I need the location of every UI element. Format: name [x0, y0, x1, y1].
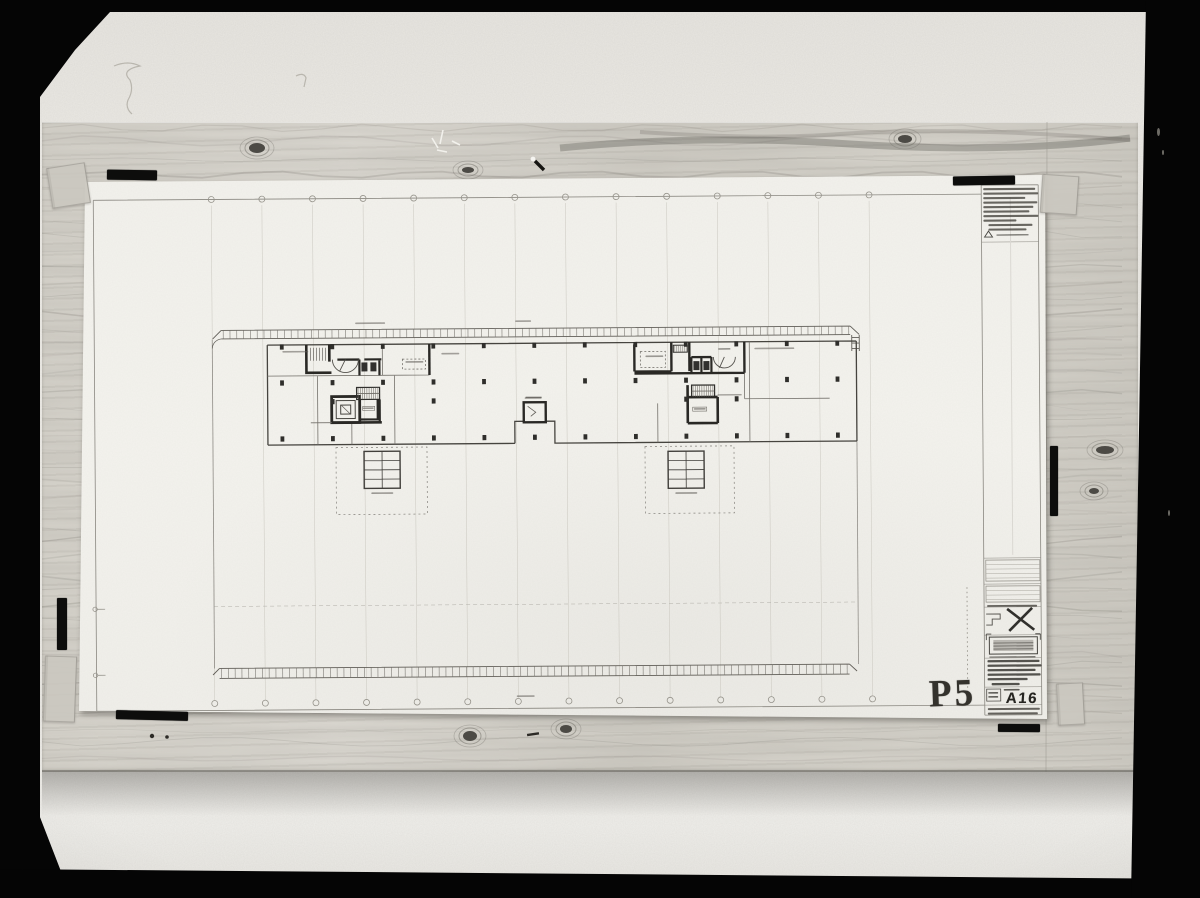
archival-photograph: P5 A16: [0, 0, 1200, 898]
paper-crease: [1010, 197, 1012, 555]
left-border-axis-marks: [93, 607, 106, 677]
canopy-rungs-top: [223, 326, 849, 339]
column-grid-axes: [208, 192, 875, 707]
revision-notes-symbol: [984, 231, 1028, 237]
black-tape-mark-bottom-left: [116, 710, 188, 721]
drawing-frame: [93, 185, 1042, 722]
canopy-band-top: [212, 326, 859, 356]
black-tape-mark-top-right: [953, 175, 1015, 185]
masking-tape-bottom-left: [43, 655, 77, 722]
building-outline: [267, 341, 857, 445]
plate-number-stamp: P5: [928, 670, 990, 717]
service-core-left: [306, 344, 430, 423]
site-plan-sketch: [986, 608, 1040, 657]
masking-tape-top-right: [1040, 174, 1080, 215]
sheet-number-stamp: A16: [1005, 690, 1038, 707]
black-tape-mark-left: [57, 598, 67, 650]
service-core-right: [634, 342, 745, 424]
masking-tape-top-left: [46, 162, 91, 209]
black-tape-mark-top-left: [107, 170, 157, 181]
film-scratch: [1168, 510, 1170, 516]
centre-room: [524, 397, 546, 422]
stair-hatch-right: [675, 346, 713, 397]
illegible-annotations: [281, 188, 1042, 720]
roof-light-left: [336, 447, 427, 515]
interior-partitions: [267, 341, 830, 445]
structural-columns: [280, 341, 840, 442]
site-boundary: [212, 335, 858, 668]
masking-tape-bottom-right: [1056, 682, 1085, 725]
film-scratch: [1162, 150, 1164, 155]
roof-light-right: [645, 446, 734, 514]
canopy-rungs-bottom: [222, 664, 848, 678]
black-tape-mark-right: [1050, 446, 1058, 516]
canopy-band-bottom: [213, 664, 857, 678]
title-block: [986, 560, 1041, 701]
film-border-top: [0, 0, 1200, 12]
stair-hatch-left: [358, 388, 378, 399]
black-tape-mark-bottom-right: [998, 724, 1040, 732]
site-line: [214, 602, 858, 606]
film-scratch: [1157, 128, 1160, 136]
